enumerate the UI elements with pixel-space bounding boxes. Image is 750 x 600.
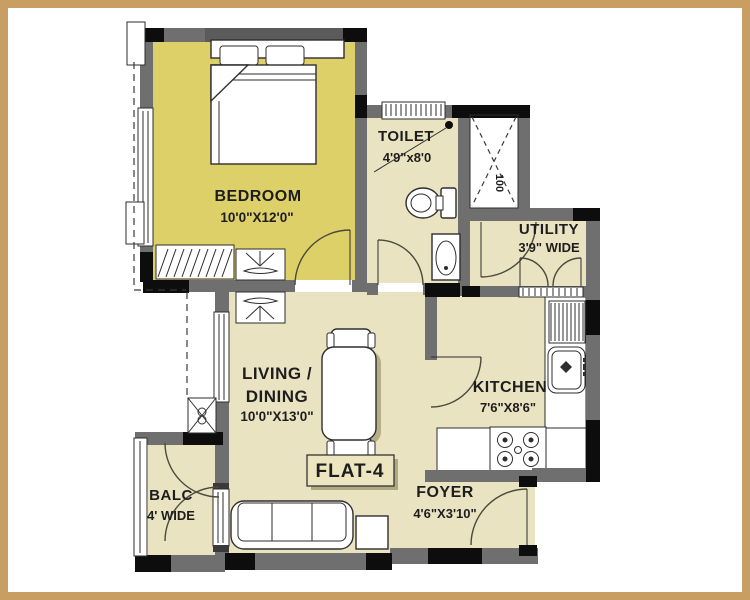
- door-hinge-block: [519, 545, 537, 556]
- ac-unit-icon: [188, 398, 216, 433]
- utility-sill-window-icon: [519, 287, 583, 297]
- kitchen-label: KITCHEN: [473, 379, 548, 396]
- wash-basin-icon: [432, 234, 460, 280]
- balcony-door-frame: [213, 483, 229, 552]
- pilaster: [126, 202, 144, 244]
- door-hinge-block: [519, 476, 537, 487]
- kitchen-sink-icon: [548, 347, 590, 393]
- wardrobe-icon: [156, 245, 234, 279]
- hob-icon: [490, 427, 546, 471]
- floor-plan: 100: [0, 0, 750, 600]
- bedroom-dims: 10'0"X12'0": [220, 210, 293, 225]
- tv-unit-icon: [236, 249, 285, 280]
- balcony-railing-icon: [134, 438, 147, 556]
- flat-label-box: FLAT-4: [307, 455, 398, 490]
- living-window-icon: [214, 312, 229, 402]
- bedroom-label: BEDROOM: [214, 188, 301, 205]
- flat-label: FLAT-4: [316, 461, 385, 482]
- living-label-line2: DINING: [246, 387, 309, 406]
- foyer-label: FOYER: [416, 484, 474, 501]
- duct-label: 100: [493, 174, 505, 192]
- foyer-dims: 4'6"X3'10": [413, 506, 476, 521]
- balcony-dims: 4' WIDE: [147, 508, 195, 523]
- tv-unit-icon: [236, 292, 285, 323]
- toilet-window-icon: [382, 102, 445, 119]
- kitchen-dims: 7'6"X8'6": [480, 400, 536, 415]
- toilet-dims: 4'9"x8'0: [383, 150, 432, 165]
- toilet-label: TOILET: [378, 128, 434, 145]
- wc-icon: [406, 188, 456, 218]
- side-table-icon: [356, 516, 388, 549]
- living-label-line1: LIVING /: [242, 364, 312, 383]
- utility-label: UTILITY: [519, 221, 579, 238]
- sofa-icon: [231, 501, 353, 549]
- balcony-label: BALC: [149, 487, 193, 504]
- utility-dims: 3'9" WIDE: [518, 240, 580, 255]
- living-dims: 10'0"X13'0": [240, 409, 313, 424]
- pilaster: [127, 22, 145, 65]
